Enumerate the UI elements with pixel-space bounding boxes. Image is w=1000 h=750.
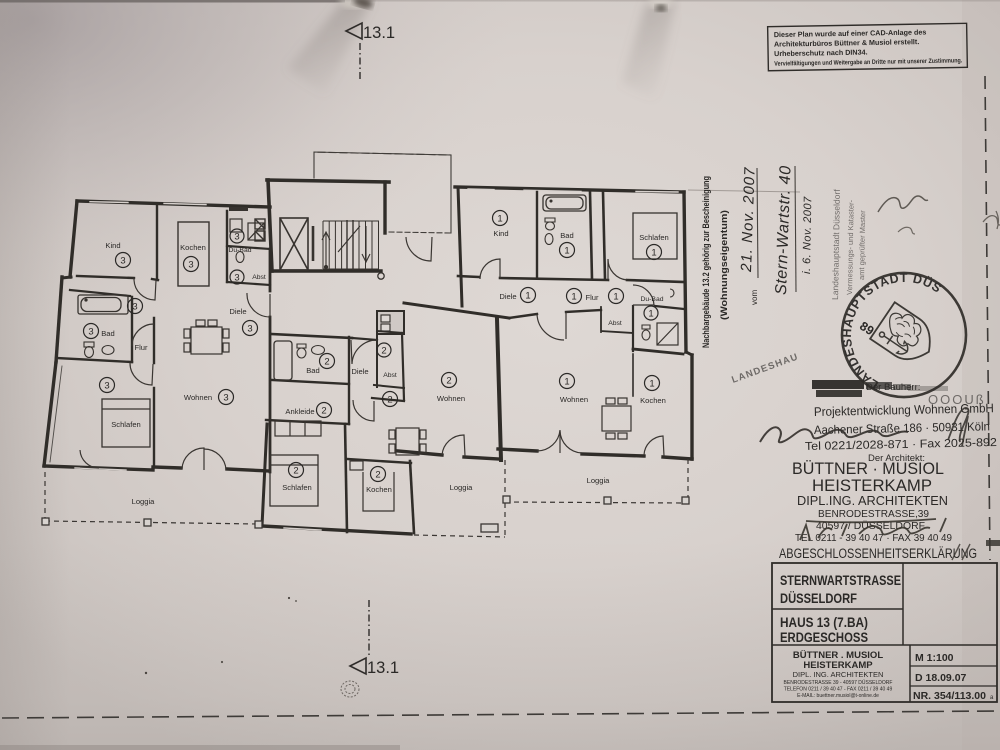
svg-text:Du-Bad: Du-Bad: [640, 296, 663, 303]
svg-text:1: 1: [649, 379, 654, 390]
svg-text:Flur: Flur: [134, 343, 148, 352]
svg-text:Ankleide: Ankleide: [285, 407, 314, 416]
svg-text:i. 6. Nov. 2007: i. 6. Nov. 2007: [801, 196, 814, 274]
svg-text:Bad: Bad: [560, 231, 574, 240]
svg-text:3: 3: [234, 273, 239, 284]
svg-text:1: 1: [497, 214, 502, 225]
svg-text:BENRODESTRASSE,39: BENRODESTRASSE,39: [818, 509, 929, 520]
svg-text:BENRODESTRASSE 39 - 40597 DÜSS: BENRODESTRASSE 39 - 40597 DÜSSELDORF: [784, 679, 893, 686]
svg-text:TELEFON 0211 / 39 40 47 - FAX: TELEFON 0211 / 39 40 47 - FAX 0211 / 39 …: [784, 687, 893, 693]
svg-text:Loggia: Loggia: [132, 497, 156, 506]
svg-text:Abst: Abst: [608, 320, 622, 327]
svg-text:Kind: Kind: [105, 241, 120, 250]
svg-text:Kochen: Kochen: [180, 243, 206, 252]
svg-text:3: 3: [223, 393, 228, 404]
svg-text:1: 1: [571, 292, 576, 303]
svg-text:1: 1: [564, 377, 569, 388]
svg-text:Schlafen: Schlafen: [282, 483, 312, 492]
svg-text:amt geprüfter Master: amt geprüfter Master: [857, 210, 867, 280]
svg-text:vom: vom: [750, 290, 759, 305]
svg-text:Bad: Bad: [306, 366, 320, 375]
svg-text:Abst: Abst: [252, 274, 266, 281]
svg-text:1: 1: [651, 248, 656, 259]
svg-text:NR. 354/113.00: NR. 354/113.00: [913, 690, 986, 702]
svg-text:2: 2: [293, 466, 298, 477]
svg-text:Flur: Flur: [585, 293, 599, 302]
svg-text:3: 3: [132, 302, 137, 313]
svg-text:Kind: Kind: [493, 229, 508, 238]
svg-text:1: 1: [613, 292, 618, 303]
svg-text:(Wohnungseigentum): (Wohnungseigentum): [719, 210, 730, 320]
svg-text:Vermessungs- und Kataster-: Vermessungs- und Kataster-: [845, 199, 856, 295]
svg-text:Bad: Bad: [101, 329, 115, 338]
svg-text:Nachbargebäude 13.2 gehörig zu: Nachbargebäude 13.2 gehörig zur Beschein…: [701, 176, 712, 348]
svg-text:Wohnen: Wohnen: [560, 395, 588, 404]
svg-text:2: 2: [321, 406, 326, 417]
svg-text:Loggia: Loggia: [587, 476, 611, 485]
svg-text:2: 2: [375, 470, 380, 481]
svg-text:STERNWARTSTRASSE: STERNWARTSTRASSE: [780, 572, 901, 588]
svg-text:M 1:100: M 1:100: [915, 652, 954, 664]
svg-text:HEISTERKAMP: HEISTERKAMP: [812, 477, 932, 495]
svg-text:Kochen: Kochen: [640, 396, 666, 405]
svg-text:Wohnen: Wohnen: [184, 393, 212, 402]
svg-text:Landeshauptstadt Düsseldorf: Landeshauptstadt Düsseldorf: [830, 189, 842, 300]
svg-text:Urheberschutz nach DIN34.: Urheberschutz nach DIN34.: [774, 48, 868, 59]
svg-text:3: 3: [234, 232, 239, 243]
svg-text:Diele: Diele: [351, 367, 368, 376]
svg-text:2: 2: [381, 346, 386, 357]
svg-text:Schlafen: Schlafen: [111, 420, 141, 429]
svg-text:HAUS 13 (7.BA): HAUS 13 (7.BA): [780, 615, 868, 630]
svg-text:D 18.09.07: D 18.09.07: [915, 672, 967, 684]
svg-text:Der Bauherr:: Der Bauherr:: [866, 382, 920, 393]
svg-text:13.1: 13.1: [367, 659, 399, 677]
svg-text:13.1: 13.1: [363, 24, 395, 42]
svg-text:3: 3: [188, 260, 193, 271]
svg-text:ABGESCHLOSSENHEITSERKLÄRUNG: ABGESCHLOSSENHEITSERKLÄRUNG: [779, 546, 977, 561]
svg-text:2: 2: [387, 395, 392, 406]
svg-text:1: 1: [648, 309, 653, 320]
svg-text:Diele: Diele: [229, 307, 246, 316]
svg-text:Loggia: Loggia: [450, 483, 474, 492]
svg-text:3: 3: [120, 256, 125, 267]
svg-text:Abst: Abst: [383, 372, 397, 379]
svg-text:DIPL. ING. ARCHITEKTEN: DIPL. ING. ARCHITEKTEN: [793, 670, 884, 679]
svg-text:2: 2: [446, 376, 451, 387]
svg-text:Diele: Diele: [499, 292, 516, 301]
svg-text:E-MAIL: buettner.musiol@t-onli: E-MAIL: buettner.musiol@t-online.de: [797, 693, 879, 699]
svg-text:Wohnen: Wohnen: [437, 394, 465, 403]
svg-text:3: 3: [247, 324, 252, 335]
svg-text:1: 1: [564, 246, 569, 257]
svg-text:TEL 0211 - 39 40 47 · FAX 39 4: TEL 0211 - 39 40 47 · FAX 39 40 49: [795, 533, 952, 544]
svg-text:Du-Bad: Du-Bad: [228, 247, 251, 254]
svg-text:DIPL.ING. ARCHITEKTEN: DIPL.ING. ARCHITEKTEN: [797, 494, 948, 508]
svg-text:3: 3: [88, 327, 93, 338]
svg-text:DÜSSELDORF: DÜSSELDORF: [780, 590, 857, 606]
svg-text:BÜTTNER · MUSIOL: BÜTTNER · MUSIOL: [792, 460, 944, 478]
svg-text:2: 2: [324, 357, 329, 368]
svg-text:3: 3: [104, 381, 109, 392]
svg-text:1: 1: [525, 291, 530, 302]
svg-text:Kochen: Kochen: [366, 485, 392, 494]
svg-text:ERDGESCHOSS: ERDGESCHOSS: [780, 630, 868, 645]
svg-text:Schlafen: Schlafen: [639, 233, 669, 242]
